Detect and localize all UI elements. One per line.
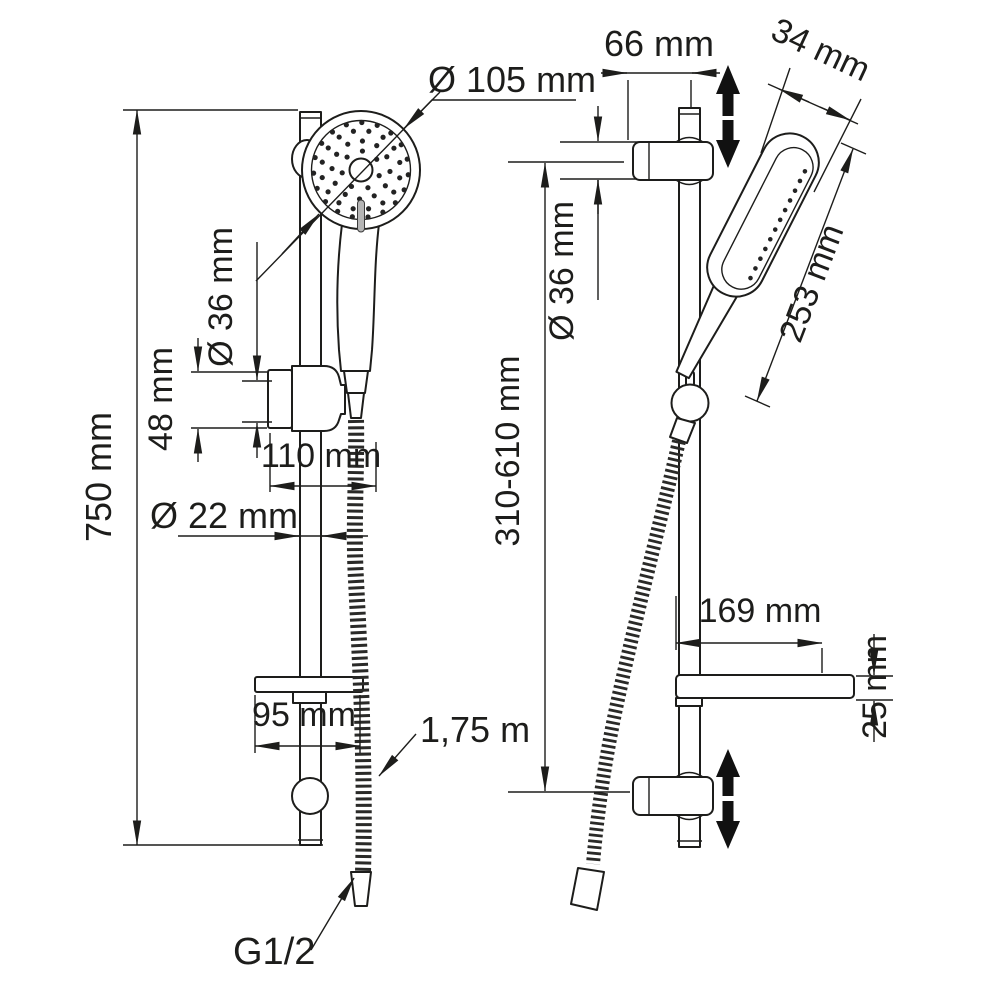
slide-up-arrow-bottom-icon	[716, 749, 740, 796]
thread-label: G1/2	[233, 931, 315, 973]
head-width-arrow-right	[820, 107, 850, 120]
soap-dish-side-mount	[676, 698, 702, 706]
holder-width-label: 110 mm	[261, 437, 381, 475]
holder-wall-plate	[268, 370, 292, 428]
shower-head-hub	[350, 159, 373, 182]
hose-end-fitting-side	[571, 868, 604, 910]
holder-ball-side	[672, 385, 709, 422]
bottom-wall-bracket	[633, 773, 713, 820]
head-diameter-label: Ø 105 mm	[428, 59, 596, 100]
holder-body-front	[292, 366, 345, 431]
bracket-diameter-label: Ø 36 mm	[543, 201, 581, 341]
slide-bar-side	[679, 108, 700, 847]
head-width-label: 34 mm	[766, 11, 876, 89]
shower-hose-front	[355, 420, 364, 872]
holder-height-label: 48 mm	[142, 347, 180, 451]
total-height-label: 750 mm	[78, 412, 119, 542]
side-view	[571, 65, 854, 910]
dish-width-label: 95 mm	[252, 696, 356, 734]
wall-offset-label: 66 mm	[604, 23, 714, 64]
soap-dish-front	[255, 677, 363, 692]
handshower-handle-front	[337, 224, 379, 371]
holder-diameter-label: Ø 36 mm	[202, 227, 240, 367]
bracket-diameter-extensions	[560, 142, 640, 179]
top-wall-bracket	[633, 138, 713, 185]
soap-dish-side	[676, 675, 854, 698]
drawing-page: Ø 105 mm 750 mm Ø 36 mm 48 mm 110 mm Ø 2…	[0, 0, 1000, 1000]
total-height-extensions	[123, 110, 323, 845]
hose-nut-top	[348, 393, 364, 418]
dish-depth-label: 169 mm	[699, 592, 822, 630]
slide-bar-front	[300, 112, 321, 845]
head-width-arrow-left	[779, 89, 809, 102]
mode-slider-slot	[358, 200, 365, 232]
dish-thickness-label: 25 mm	[856, 635, 894, 739]
thread-leader	[311, 878, 354, 950]
shower-set-dimensional-drawing: Ø 105 mm 750 mm Ø 36 mm 48 mm 110 mm Ø 2…	[0, 0, 1000, 1000]
bottom-knob	[292, 778, 328, 814]
handle-connector	[344, 371, 368, 393]
slide-down-arrow-top-icon	[716, 120, 740, 168]
bar-diameter-label: Ø 22 mm	[150, 495, 298, 536]
adjust-range-label: 310-610 mm	[489, 356, 527, 547]
hose-length-leader	[379, 734, 416, 776]
hose-end-fitting-front	[351, 872, 371, 906]
hose-length-label: 1,75 m	[420, 709, 530, 750]
slide-down-arrow-bottom-icon	[716, 801, 740, 849]
